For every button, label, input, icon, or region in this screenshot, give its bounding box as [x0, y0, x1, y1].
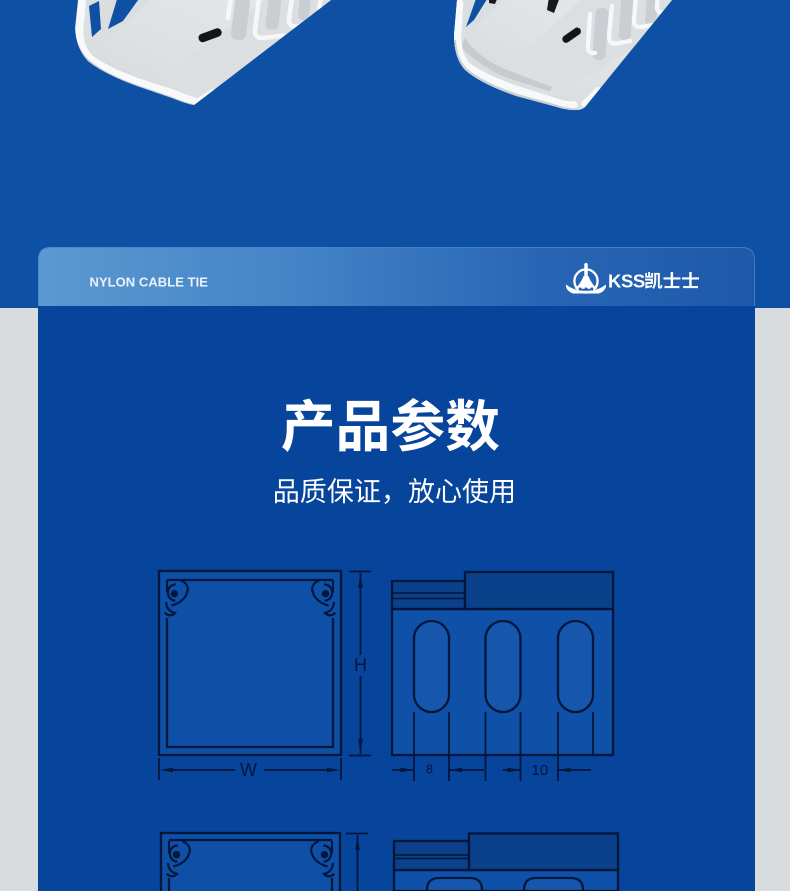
- svg-text:8: 8: [426, 763, 433, 777]
- svg-text:NYLON CABLE TIE: NYLON CABLE TIE: [90, 275, 209, 290]
- svg-text:10: 10: [532, 762, 549, 779]
- svg-text:H: H: [354, 655, 367, 675]
- svg-text:KSS: KSS: [608, 271, 645, 292]
- svg-text:W: W: [240, 760, 257, 780]
